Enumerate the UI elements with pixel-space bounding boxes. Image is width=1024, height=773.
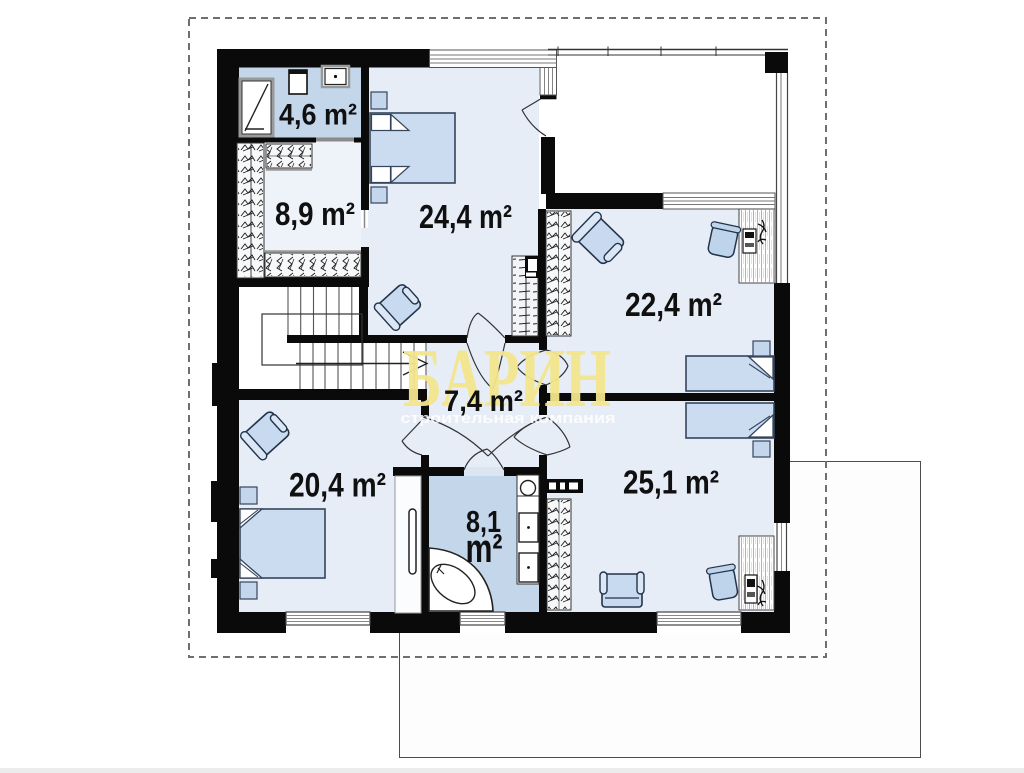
- svg-text:24,4 m²: 24,4 m²: [419, 198, 512, 235]
- svg-text:m²: m²: [466, 527, 503, 571]
- svg-text:20,4 m²: 20,4 m²: [289, 467, 386, 505]
- svg-text:4,6 m²: 4,6 m²: [279, 99, 357, 132]
- svg-text:7,4 m²: 7,4 m²: [444, 385, 523, 418]
- svg-text:8,9 m²: 8,9 m²: [275, 196, 355, 232]
- svg-text:25,1 m²: 25,1 m²: [623, 464, 719, 501]
- svg-text:22,4 m²: 22,4 m²: [625, 286, 722, 323]
